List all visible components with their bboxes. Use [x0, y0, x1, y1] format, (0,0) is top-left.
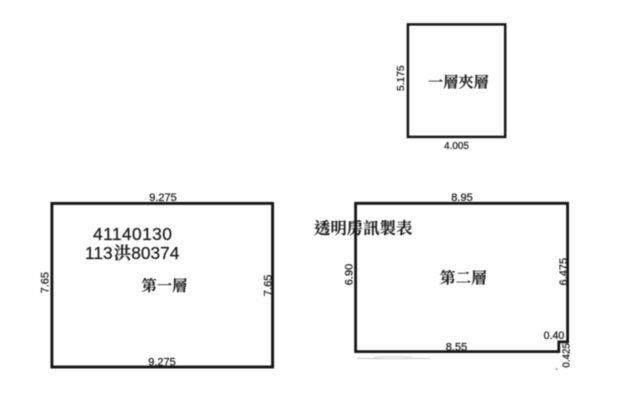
svg-text:5.175: 5.175 [396, 65, 407, 91]
svg-text:6.90: 6.90 [344, 264, 356, 285]
svg-text:8.55: 8.55 [446, 342, 467, 354]
svg-text:41140130: 41140130 [93, 224, 172, 244]
svg-text:6.475: 6.475 [558, 258, 570, 286]
svg-text:113: 113 [85, 243, 113, 263]
svg-text:8.95: 8.95 [451, 192, 472, 204]
svg-text:0.40: 0.40 [544, 330, 565, 342]
svg-text:80374: 80374 [131, 243, 179, 263]
svg-text:7.65: 7.65 [40, 272, 52, 293]
svg-text:7.65: 7.65 [263, 275, 275, 296]
svg-text:0.425: 0.425 [562, 343, 573, 368]
svg-text:9.275: 9.275 [148, 357, 176, 369]
svg-text:4.005: 4.005 [444, 141, 469, 152]
svg-text:9.275: 9.275 [149, 192, 177, 204]
